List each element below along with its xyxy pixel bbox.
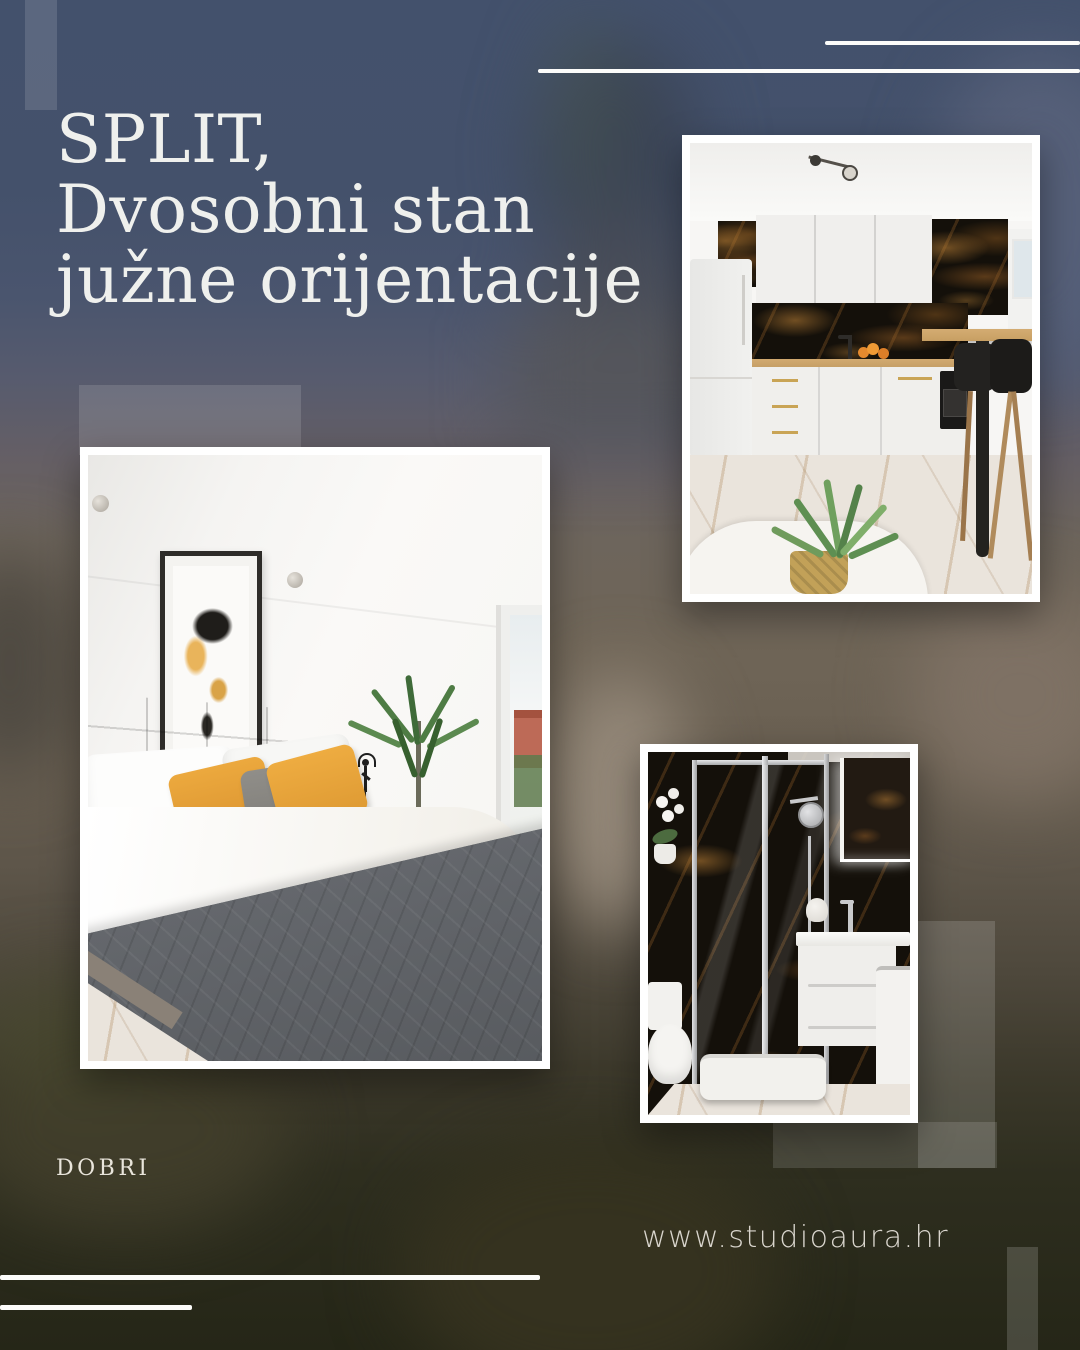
bathroom-shower-tray [700,1054,826,1100]
kitchen-window [1008,229,1032,329]
kitchen-upper-cabinets [756,215,932,308]
bedroom-sconce-right-icon [287,572,303,588]
bathroom-photo-image [648,752,910,1115]
accent-line-bottom-long [0,1275,540,1280]
overlay-rect-bathroom-bottom [773,1122,997,1168]
kitchen-photo [682,135,1040,602]
building-dark-left [0,550,80,780]
kitchen-marble-panel-right [932,219,1008,315]
bathroom-toilet [648,982,696,1092]
bathroom-mirror [840,758,910,862]
kitchen-photo-image [690,143,1032,594]
kitchen-bar-stool-seat-2 [990,339,1032,393]
bathroom-photo [640,744,918,1123]
kitchen-countertop [752,359,968,367]
bathroom-vanity-faucet-icon [840,900,860,936]
kitchen-oranges [858,343,892,359]
title-line-2: Dvosobni stan [56,175,643,245]
kitchen-faucet-icon [838,335,854,361]
poster-canvas: SPLIT, Dvosobni stan južne orijentacije [0,0,1080,1350]
accent-line-bottom-short [0,1305,192,1310]
kitchen-lower-cabinets [752,367,968,455]
title-line-3: južne orijentacije [56,245,643,315]
overlay-rect-bedroom-top [79,385,301,455]
overlay-rect-topleft-bar [25,0,57,110]
building-light-rightmid [910,590,1080,800]
location-label: DOBRI [56,1156,151,1181]
kitchen-fridge [690,259,752,457]
bedroom-sconce-left-icon [92,495,109,512]
bedroom-photo [80,447,550,1069]
accent-line-top-long [538,69,1080,73]
title-line-1: SPLIT, [56,105,643,175]
kitchen-plant [750,473,930,583]
bathroom-vanity-counter [796,932,910,946]
accent-line-top-short [825,41,1080,45]
overlay-rect-bottomright-bar [1007,1247,1038,1350]
kitchen-ceiling [690,143,1032,221]
bedroom-ceiling-edge [88,573,542,638]
bathroom-orchid [648,782,688,872]
bathroom-candle [806,898,828,922]
website-url: www.studioaura.hr [642,1220,949,1255]
bathroom-washing-machine [876,966,910,1096]
page-title: SPLIT, Dvosobni stan južne orijentacije [56,105,643,315]
kitchen-ceiling-light-icon [808,155,858,177]
bedroom-photo-image [88,455,542,1061]
bathroom-shower-head-icon [786,792,826,832]
